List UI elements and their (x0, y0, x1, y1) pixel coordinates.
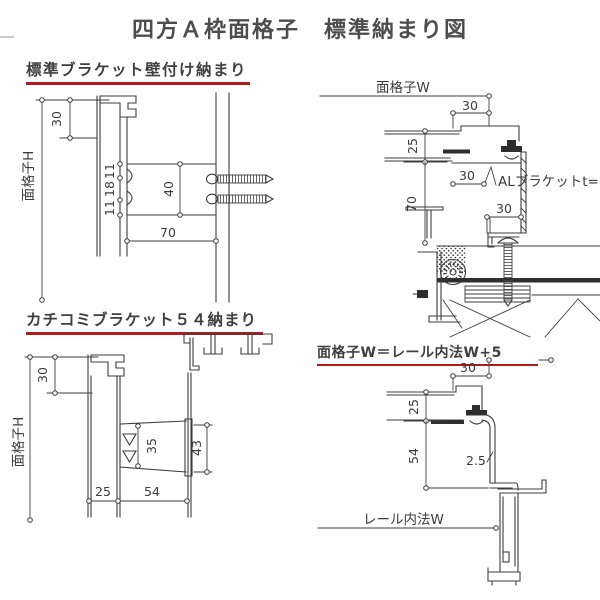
drawing-page: 四方Ａ枠面格子 標準納まり図 標準ブラケット壁付け納まり カチコミブラケット５４… (0, 0, 600, 600)
diagram-rail-engagement-plan: 30 2.5 25 (318, 358, 553, 585)
dim-depth: 70 (160, 225, 176, 240)
dim-face-2: 25 (406, 399, 421, 415)
grille-width-label: 面格子W (376, 80, 430, 96)
diagram-wall-mount-bracket: 面格子H 30 11 18 11 40 (21, 93, 273, 302)
technical-drawing: 面格子H 30 11 18 11 40 (0, 0, 600, 600)
kachikomi-hook-plate (482, 414, 518, 490)
sill-section (413, 238, 600, 337)
dim-drop-2: 54 (406, 448, 421, 464)
al-bracket-plate (488, 152, 526, 247)
dim-inner: 30 (459, 168, 475, 183)
dim-top-offset: 30 (49, 111, 64, 127)
grille-height-label-2: 面格子H (11, 417, 27, 468)
grille-height-label: 面格子H (21, 151, 37, 202)
dim-edge-2: 30 (460, 360, 476, 375)
diagram-kachikomi-bracket: 面格子H 30 35 (11, 334, 272, 522)
rail-section (488, 480, 546, 585)
kachikomi-rail-profile (184, 334, 272, 370)
dim-offset: 25 (95, 484, 111, 499)
dim-foot: 30 (496, 201, 512, 216)
dim-face: 25 (405, 138, 420, 154)
dim-seg-a: 11 (102, 163, 117, 179)
dim-top-offset-2: 30 (35, 367, 50, 383)
diagram-al-bracket-plan: 面格子W 30 25 ALブラケットt=3 (320, 80, 600, 337)
dim-plate-thickness: 2.5 (466, 453, 486, 468)
rail-inner-width-label: レール内法W (363, 512, 444, 528)
dim-bracket-height: 40 (161, 181, 176, 197)
dim-seg-c: 11 (102, 200, 117, 216)
dim-depth-2: 54 (144, 484, 160, 499)
al-bracket-label: ALブラケットt=3 (498, 173, 600, 190)
dim-notch: 35 (144, 438, 159, 454)
dim-bracket-height-2: 43 (189, 440, 204, 456)
dim-seg-b: 18 (102, 181, 117, 197)
dim-edge: 30 (462, 98, 478, 113)
